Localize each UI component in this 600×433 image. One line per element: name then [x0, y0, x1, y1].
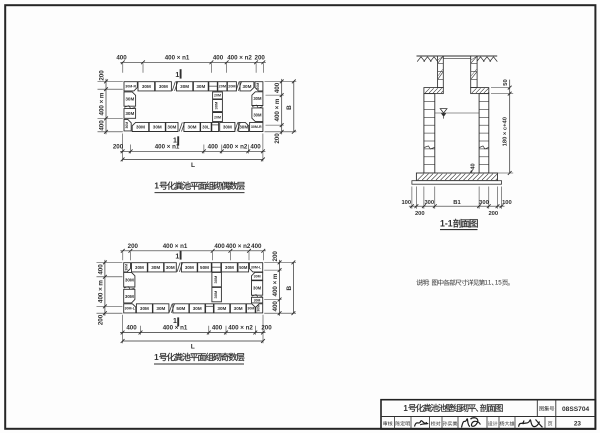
svg-text::: :: [428, 280, 430, 287]
svg-text:300: 300: [479, 200, 489, 206]
svg-text:400 × m: 400 × m: [97, 280, 104, 303]
svg-text:400 × n1: 400 × n1: [163, 243, 188, 250]
svg-text:08SS704: 08SS704: [562, 406, 589, 413]
svg-text:30M: 30M: [239, 125, 248, 130]
svg-text:400 × m: 400 × m: [272, 273, 279, 296]
svg-text:20M: 20M: [228, 85, 235, 89]
svg-text:50M: 50M: [200, 265, 209, 270]
svg-text:30M: 30M: [254, 275, 261, 279]
svg-text:50: 50: [503, 79, 509, 85]
svg-text:200: 200: [415, 211, 425, 217]
svg-text:B1: B1: [453, 200, 461, 206]
svg-text:400 × n1: 400 × n1: [155, 143, 180, 150]
svg-text:400: 400: [214, 243, 225, 250]
svg-text:30M: 30M: [242, 84, 251, 89]
svg-text:40: 40: [471, 163, 477, 169]
svg-text:400: 400: [272, 301, 279, 312]
svg-text:30L: 30L: [202, 124, 210, 129]
svg-text:200: 200: [128, 243, 139, 250]
svg-text:1: 1: [488, 280, 492, 287]
svg-text:30M: 30M: [180, 84, 189, 89]
svg-text:400 × n1: 400 × n1: [165, 54, 190, 61]
svg-text:1: 1: [448, 218, 453, 228]
svg-text:30M: 30M: [196, 84, 205, 89]
svg-text:400: 400: [213, 54, 224, 61]
svg-text:30M: 30M: [142, 84, 151, 89]
svg-text:B: B: [286, 105, 293, 110]
svg-text:B: B: [286, 286, 293, 291]
svg-text:400 × n2: 400 × n2: [226, 243, 251, 250]
svg-text:30M: 30M: [135, 265, 144, 270]
svg-text:400: 400: [126, 325, 137, 332]
svg-text:30M: 30M: [213, 290, 218, 298]
svg-text:1: 1: [403, 404, 408, 413]
svg-text:1: 1: [175, 253, 179, 260]
svg-text:30M: 30M: [253, 96, 262, 101]
svg-text:50M: 50M: [239, 265, 248, 270]
svg-text:50M: 50M: [176, 306, 185, 311]
svg-text:30M: 30M: [125, 97, 134, 102]
svg-text:30M: 30M: [156, 306, 165, 311]
svg-text:23: 23: [574, 421, 582, 428]
svg-text:200: 200: [488, 211, 498, 217]
svg-text:L: L: [191, 162, 195, 169]
svg-text:30M: 30M: [217, 306, 226, 311]
svg-text:30M: 30M: [185, 265, 194, 270]
svg-text:200: 200: [113, 143, 124, 150]
svg-text:20M: 20M: [214, 94, 221, 98]
svg-text:400 × m: 400 × m: [274, 98, 281, 121]
svg-text:30M-L: 30M-L: [251, 266, 262, 270]
svg-text:30M: 30M: [225, 265, 234, 270]
svg-text:200: 200: [274, 133, 281, 144]
svg-text:30M: 30M: [167, 125, 176, 130]
svg-text:400: 400: [116, 54, 127, 61]
svg-text:400 × n2: 400 × n2: [228, 325, 253, 332]
svg-text:30M: 30M: [125, 111, 134, 116]
svg-text:180 × c+40: 180 × c+40: [502, 117, 508, 146]
svg-text:1: 1: [154, 182, 159, 191]
svg-text:30M: 30M: [125, 122, 129, 129]
svg-text:30M-R: 30M-R: [251, 125, 262, 129]
svg-text:30M: 30M: [234, 306, 243, 311]
svg-text:30M: 30M: [125, 277, 134, 282]
svg-text:400: 400: [99, 120, 106, 131]
svg-text:200: 200: [99, 70, 106, 81]
svg-text:30M: 30M: [159, 84, 168, 89]
svg-text:200: 200: [255, 54, 266, 61]
svg-text:400: 400: [97, 264, 104, 275]
svg-text:30M: 30M: [193, 306, 202, 311]
svg-text:30M: 30M: [153, 125, 162, 130]
svg-text:L: L: [191, 344, 195, 351]
svg-text:30M: 30M: [214, 101, 219, 109]
svg-text:400: 400: [250, 143, 261, 150]
svg-text:400: 400: [212, 325, 223, 332]
svg-text:400: 400: [251, 243, 262, 250]
svg-text:30M: 30M: [256, 305, 260, 312]
svg-text:30M: 30M: [125, 294, 134, 299]
svg-text:30M-L: 30M-L: [125, 307, 136, 311]
svg-text:30M: 30M: [124, 264, 128, 271]
svg-text:30M: 30M: [140, 306, 149, 311]
svg-text:30M: 30M: [213, 275, 218, 283]
svg-text:100: 100: [401, 200, 411, 206]
svg-text:200: 200: [97, 314, 104, 325]
svg-text:400: 400: [274, 82, 281, 93]
svg-text:20M: 20M: [214, 115, 221, 119]
svg-text:400: 400: [208, 143, 219, 150]
svg-text:400 × n1: 400 × n1: [163, 325, 188, 332]
svg-text:300: 300: [424, 200, 434, 206]
svg-text:1: 1: [175, 72, 179, 79]
svg-text:5: 5: [498, 280, 502, 287]
svg-text:100: 100: [502, 200, 512, 206]
svg-text:400 × m: 400 × m: [99, 92, 106, 115]
svg-text:30M: 30M: [188, 125, 197, 130]
svg-text:30M: 30M: [253, 112, 262, 117]
svg-text:1: 1: [154, 353, 159, 362]
svg-text:20M: 20M: [256, 83, 260, 90]
svg-text:30M: 30M: [166, 265, 175, 270]
svg-text:20M: 20M: [219, 85, 226, 89]
svg-text:30M: 30M: [253, 285, 262, 290]
svg-text:30M: 30M: [136, 125, 145, 130]
svg-text:400 × n2: 400 × n2: [223, 143, 248, 150]
svg-text:30M: 30M: [223, 125, 232, 130]
svg-text:200: 200: [272, 251, 279, 262]
svg-text:30M: 30M: [247, 307, 254, 311]
svg-text:30M-R: 30M-R: [125, 85, 136, 89]
svg-text:30M: 30M: [151, 265, 160, 270]
svg-text:400 × n2: 400 × n2: [227, 54, 252, 61]
svg-text:30M: 30M: [254, 298, 261, 302]
